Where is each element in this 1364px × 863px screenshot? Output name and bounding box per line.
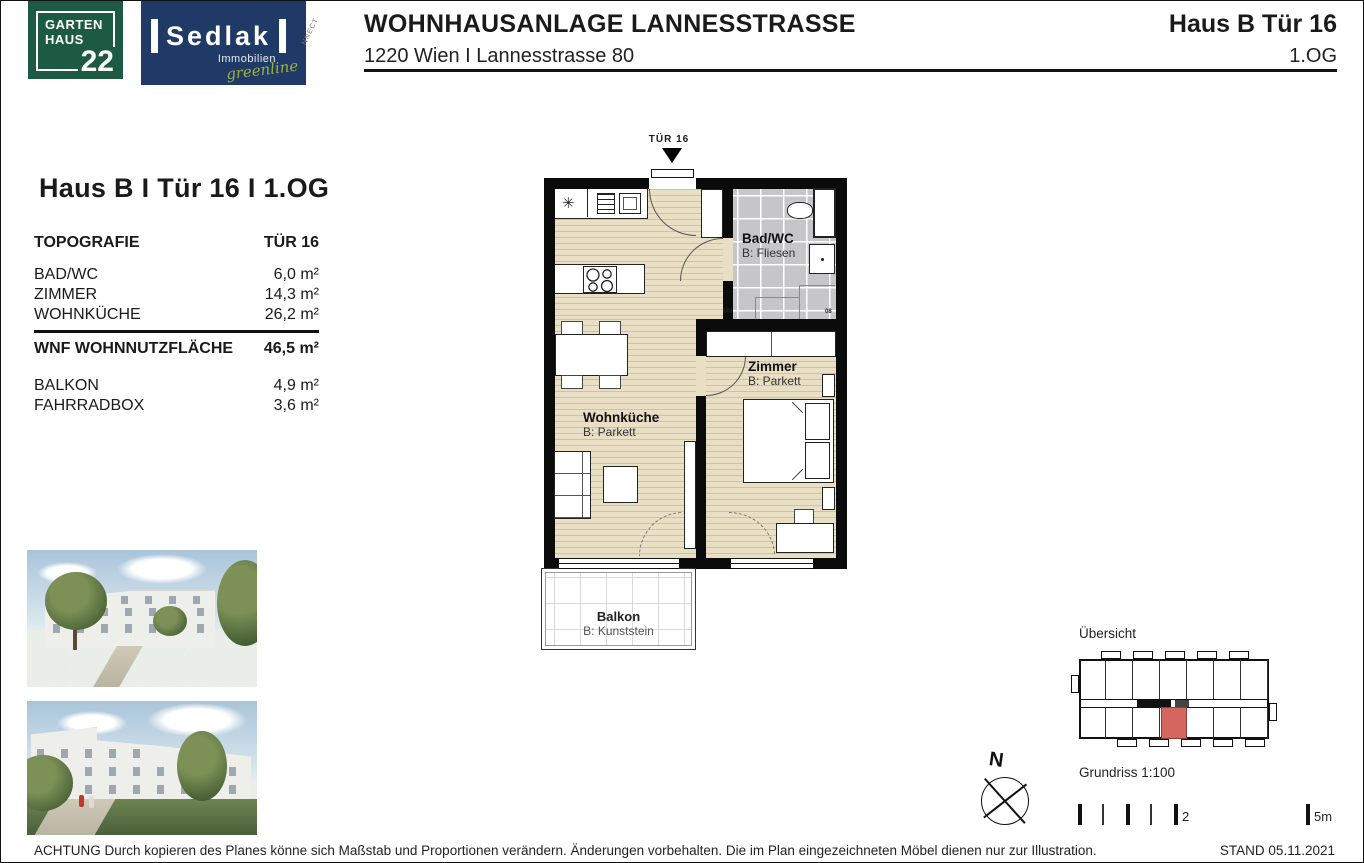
col-header: TOPOGRAFIE [34,233,140,253]
table-row: ZIMMER 14,3 m² [34,285,319,305]
cloud [117,554,207,584]
scale-tick-label: 2 [1182,809,1189,824]
logo-bar-icon [151,19,158,53]
page-title: Haus B I Tür 16 I 1.OG [39,173,329,204]
room-balkon: Balkon B: Kunststein [541,568,696,650]
desk-chair [794,509,814,524]
plan-annotation: MN [723,309,732,315]
door-swing-arc [649,189,696,236]
scale-tick [1306,804,1310,825]
room-area: 3,6 m² [274,396,319,416]
nightstand [822,487,835,510]
table-row: WOHNKÜCHE 26,2 m² [34,305,319,325]
balcony-tab [1213,739,1233,747]
rendering-photo-2 [27,701,257,835]
blanket-fold [792,402,803,413]
unit-floor: 1.OG [1001,45,1337,68]
table-divider [34,330,319,333]
desk [776,523,834,553]
table-header-row: TOPOGRAFIE TÜR 16 [34,233,319,253]
balcony-tab [1245,739,1265,747]
wardrobe [706,331,836,357]
room-name: BAD/WC [34,265,98,285]
north-label: N [987,748,1005,773]
blanket-fold [792,469,803,480]
window [559,558,679,569]
balcony-tab [1101,651,1121,659]
unit-title: Haus B Tür 16 [1001,10,1337,39]
pillow [805,403,830,440]
scale-tick [1102,804,1104,825]
table-row: FAHRRADBOX 3,6 m² [34,396,319,416]
scale-tick [1078,804,1082,825]
room-floor-type: B: Fliesen [742,246,795,260]
corridor-line [1081,699,1267,700]
chair [599,321,621,335]
meadow [27,644,257,687]
entrance-label: TÜR 16 [634,134,704,145]
plan-annotation: 08 [825,309,832,315]
rendering-photo-1 [27,550,257,687]
overview-label: Übersicht [1079,626,1136,641]
side-tab [1071,675,1079,693]
project-title: WOHNHAUSANLAGE LANNESSTRASSE [364,10,856,39]
entrance-opening [649,178,696,189]
pillow [805,442,830,479]
sedlak-logo: Sedlak Immobilien greenline [141,1,306,85]
scale-tick [1174,804,1178,825]
room-label-zimmer: Zimmer B: Parkett [748,359,801,388]
tree [45,572,107,630]
sofa [554,451,591,519]
room-name: Balkon [542,609,695,624]
drainboard-icon [597,193,615,214]
person [89,796,94,808]
disclaimer-text: ACHTUNG Durch kopieren des Planes könne … [34,843,1097,858]
total-area: 46,5 m² [264,339,319,359]
room-name: BALKON [34,376,99,396]
bed [743,399,834,483]
dining-table [555,334,628,376]
header-rule [364,69,1337,72]
kitchen-counter-stove [555,264,645,294]
entrance-door [651,169,694,178]
door-swing-arc [706,356,746,396]
room-floor-type: B: Kunststein [542,624,695,638]
unit-row-top [1079,659,1269,699]
room-area: 26,2 m² [265,305,319,325]
coffee-table [603,466,638,503]
logo-text: GARTEN [45,17,103,32]
bad-door-opening [723,238,733,281]
shower-edge [755,297,799,319]
col-header: TÜR 16 [264,233,319,253]
floor-plan: TÜR 16 Balkon B: Kunststein ✳ [539,131,855,661]
room-label-wohnkueche: Wohnküche B: Parkett [583,410,659,439]
highlighted-unit [1161,707,1187,739]
balcony-door-arc [639,512,683,556]
room-area: 14,3 m² [265,285,319,305]
balcony-tab [1229,651,1249,659]
scale-tick-label: 5m [1314,809,1332,824]
logo-bar-icon [279,19,286,53]
room-name: Zimmer [748,359,801,374]
toilet [787,202,813,219]
scale-label: Grundriss 1:100 [1079,765,1175,780]
room-name: FAHRRADBOX [34,396,144,416]
balcony-tab [1149,739,1169,747]
project-address: 1220 Wien I Lannesstrasse 80 [364,45,634,68]
logo-number: 22 [78,47,117,77]
shaft [813,188,836,238]
chair [599,375,621,389]
side-tab [1269,703,1277,721]
zimmer-door-opening [696,356,706,396]
room-label-bad: Bad/WC B: Fliesen [742,231,795,260]
bush [153,606,187,636]
room-name: Bad/WC [742,231,795,246]
balcony-tab [1197,651,1217,659]
logo-text: HAUS [45,32,84,47]
room-name: ZIMMER [34,285,97,305]
floor-plan-sheet: GARTEN HAUS 22 Sedlak Immobilien greenli… [0,0,1364,863]
counter-divider [587,189,588,217]
window [731,558,813,569]
room-floor-type: B: Parkett [748,374,801,388]
elevator [1175,700,1189,707]
total-label: WNF WOHNNUTZFLÄCHE [34,339,233,359]
hall-closet [701,189,723,238]
topography-table: TOPOGRAFIE TÜR 16 BAD/WC 6,0 m² ZIMMER 1… [34,233,319,416]
room-area: 4,9 m² [274,376,319,396]
tree [217,560,257,646]
compass: N [981,749,1051,834]
tall-cabinet [684,441,696,549]
chair [561,321,583,335]
entrance-arrow-icon [662,148,682,163]
chair [561,375,583,389]
sink-basin-icon [619,193,641,214]
balcony-tab [1117,739,1137,747]
balcony-tab [1165,651,1185,659]
stove-icon [583,266,617,293]
sink-star-icon: ✳ [562,194,575,212]
scale-bar: 2 5m [1078,804,1348,834]
balcony-tab [1181,739,1201,747]
room-floor-type: B: Parkett [583,425,659,439]
window-row [97,596,209,604]
table-row: BAD/WC 6,0 m² [34,265,319,285]
room-name: WOHNKÜCHE [34,305,141,325]
revision-date: STAND 05.11.2021 [1220,843,1335,858]
logo-name: Sedlak [166,21,271,52]
french-door-arc [729,512,775,556]
scale-tick [1126,804,1130,825]
room-area: 6,0 m² [274,265,319,285]
balcony-tab [1133,651,1153,659]
table-total-row: WNF WOHNNUTZFLÄCHE 46,5 m² [34,339,319,359]
room-name: Wohnküche [583,410,659,425]
stair-core [1137,699,1171,707]
table-row: BALKON 4,9 m² [34,376,319,396]
door-swing-arc [680,238,723,281]
tree [177,731,227,801]
person [79,795,84,807]
washing-machine [809,244,835,274]
nightstand [822,374,835,397]
overview-map [1079,651,1279,741]
gartenhaus22-logo: GARTEN HAUS 22 [28,1,123,79]
kitchen-counter: ✳ [555,189,648,219]
scale-tick [1150,804,1152,825]
